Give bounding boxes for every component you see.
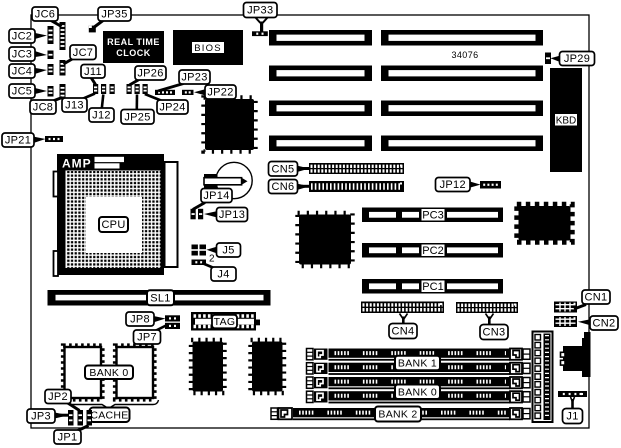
svg-text:TAG: TAG: [214, 316, 236, 328]
svg-text:SL1: SL1: [150, 293, 170, 305]
svg-text:JP3: JP3: [31, 411, 51, 423]
svg-text:J13: J13: [65, 100, 84, 112]
svg-text:CN3: CN3: [483, 327, 506, 339]
svg-text:REAL TIME: REAL TIME: [107, 37, 160, 47]
svg-text:34076: 34076: [451, 50, 478, 60]
svg-text:PC1: PC1: [422, 281, 443, 293]
svg-text:PC3: PC3: [422, 210, 443, 222]
svg-text:J5: J5: [222, 245, 234, 257]
svg-text:JP21: JP21: [5, 135, 31, 147]
svg-text:JP23: JP23: [181, 72, 207, 84]
svg-text:JC4: JC4: [12, 66, 32, 78]
svg-text:JP33: JP33: [247, 5, 273, 17]
svg-text:BANK 1: BANK 1: [398, 358, 437, 370]
svg-text:AMP: AMP: [62, 157, 92, 171]
svg-text:JP25: JP25: [124, 111, 150, 123]
svg-text:J12: J12: [92, 110, 111, 122]
svg-text:J1: J1: [566, 411, 578, 423]
svg-text:BIOS: BIOS: [194, 43, 222, 54]
svg-text:CN4: CN4: [392, 326, 415, 338]
svg-text:JP8: JP8: [130, 314, 150, 326]
svg-text:JP22: JP22: [207, 87, 233, 99]
svg-text:J11: J11: [84, 66, 102, 78]
svg-text:JP2: JP2: [48, 391, 68, 403]
svg-text:JP24: JP24: [159, 102, 185, 114]
svg-text:JP26: JP26: [137, 68, 163, 80]
svg-text:2: 2: [209, 254, 215, 265]
svg-text:JP7: JP7: [137, 332, 157, 344]
svg-text:JC2: JC2: [12, 31, 32, 43]
svg-text:CLOCK: CLOCK: [116, 48, 151, 58]
svg-text:J4: J4: [217, 269, 229, 281]
svg-text:JC5: JC5: [12, 86, 32, 98]
svg-text:CN6: CN6: [272, 181, 295, 193]
svg-text:CPU: CPU: [101, 219, 125, 231]
svg-text:CN5: CN5: [272, 163, 295, 175]
svg-text:JP13: JP13: [219, 209, 245, 221]
svg-text:BANK 0: BANK 0: [89, 367, 128, 379]
svg-text:JP12: JP12: [440, 179, 466, 191]
svg-text:BANK 2: BANK 2: [378, 409, 417, 421]
svg-text:PC2: PC2: [422, 245, 443, 257]
svg-text:JC7: JC7: [73, 47, 93, 59]
svg-text:BANK 0: BANK 0: [398, 386, 437, 398]
svg-text:JP35: JP35: [101, 9, 127, 21]
svg-text:CN1: CN1: [585, 292, 608, 304]
svg-text:CACHE: CACHE: [90, 409, 128, 421]
svg-text:JC6: JC6: [35, 9, 55, 21]
svg-text:JP29: JP29: [564, 53, 590, 65]
svg-text:JP1: JP1: [58, 432, 78, 444]
svg-text:JC8: JC8: [33, 102, 53, 114]
svg-text:CN2: CN2: [593, 318, 616, 330]
svg-text:JP14: JP14: [203, 190, 229, 202]
svg-text:KBD: KBD: [556, 116, 577, 127]
svg-text:JC3: JC3: [12, 49, 32, 61]
